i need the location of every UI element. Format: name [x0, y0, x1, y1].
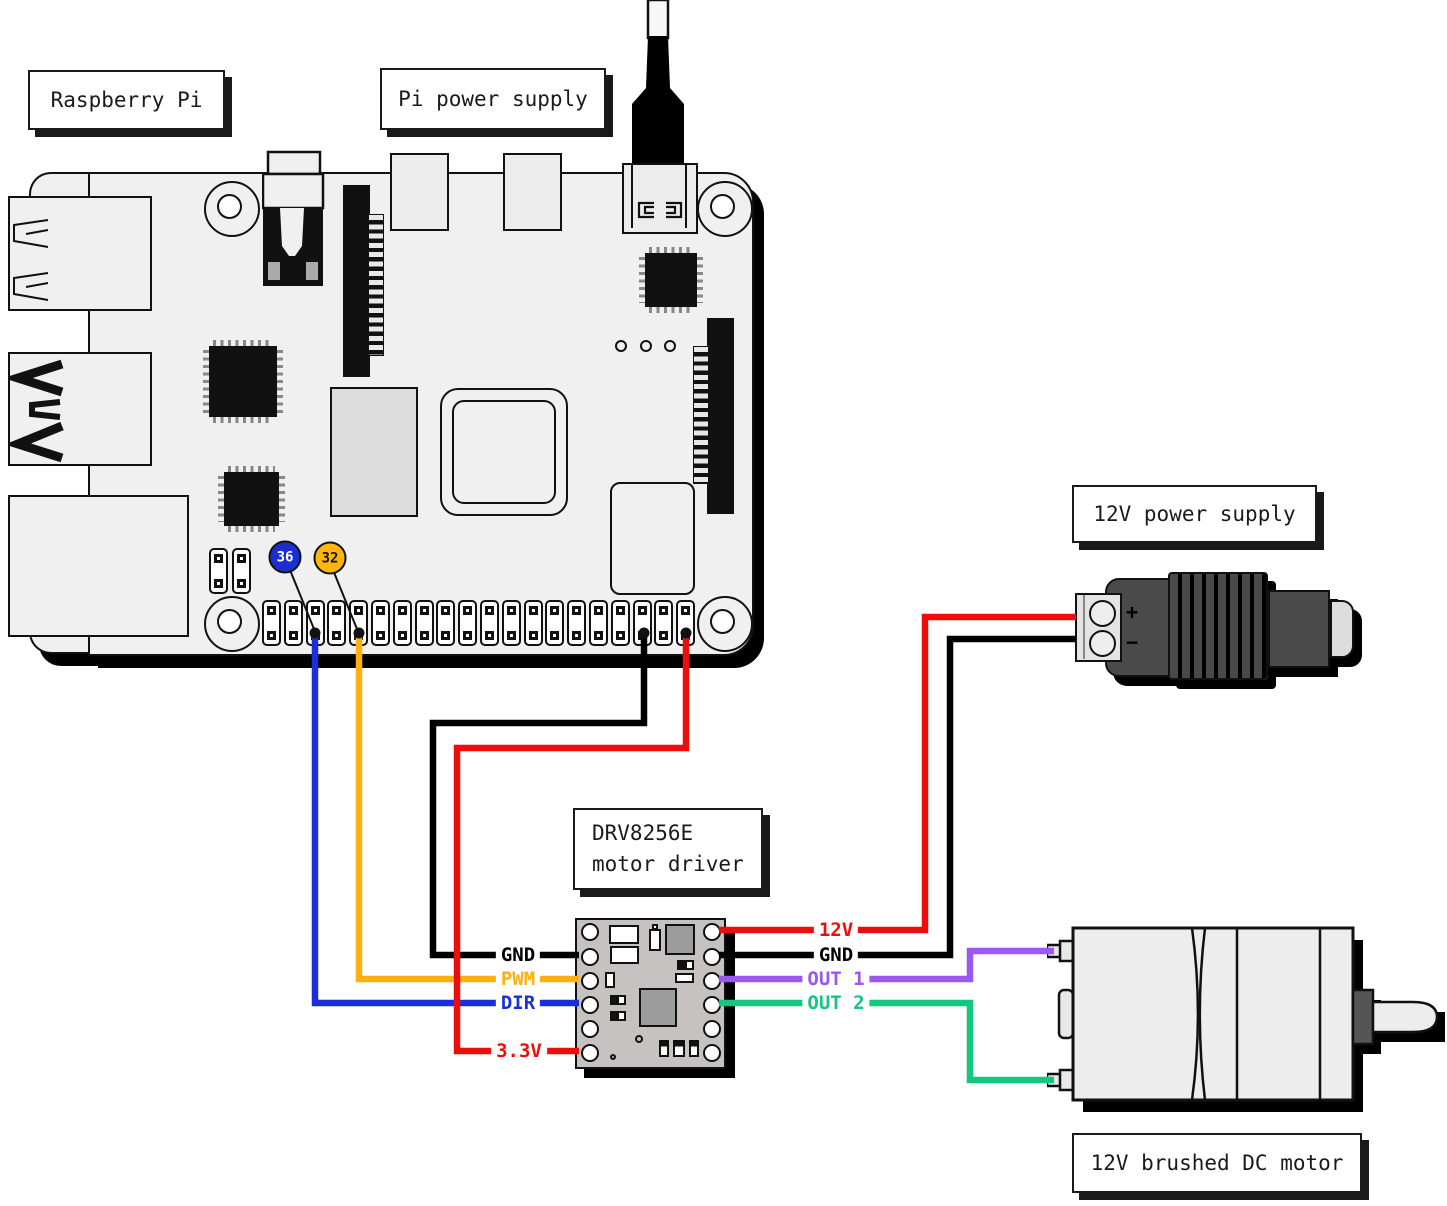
wire-12v: [719, 617, 1076, 930]
wire-label-out2: OUT 2: [802, 992, 869, 1014]
label-raspberry-pi-text: Raspberry Pi: [51, 88, 203, 112]
label-raspberry-pi: Raspberry Pi: [28, 70, 225, 130]
badge-32-pointer: [333, 570, 357, 629]
wire-label-dir: DIR: [496, 992, 540, 1014]
wire-out2: [719, 1003, 1054, 1080]
gpio-pin-badge-36: 36: [269, 541, 302, 574]
gpio-pin-dot: [310, 628, 321, 639]
wire-label-pwm: PWM: [496, 968, 540, 990]
wires-layer: [0, 0, 1447, 1206]
wire-label-12v: 12V: [814, 919, 858, 941]
gpio-pin-dot: [681, 628, 692, 639]
gpio-pin-dot: [639, 628, 650, 639]
wire-label-out1: OUT 1: [802, 968, 869, 990]
gpio-pin-badge-32: 32: [314, 542, 347, 575]
wire-gnd-pi: [433, 636, 644, 955]
label-12v-power-supply-text: 12V power supply: [1093, 502, 1295, 526]
label-motor-driver: DRV8256E motor driver: [573, 808, 763, 890]
wiring-diagram: + −: [0, 0, 1447, 1206]
label-motor-driver-line1: DRV8256E: [592, 818, 693, 849]
badge-36-pointer: [290, 570, 314, 629]
wire-label-gnd2: GND: [814, 944, 858, 966]
label-12v-power-supply: 12V power supply: [1072, 485, 1317, 543]
label-dc-motor-text: 12V brushed DC motor: [1091, 1151, 1344, 1175]
wire-pwm: [359, 636, 579, 979]
wire-gnd-supply: [719, 639, 1076, 955]
label-dc-motor: 12V brushed DC motor: [1072, 1133, 1362, 1193]
label-pi-power-supply-text: Pi power supply: [398, 87, 588, 111]
label-pi-power-supply: Pi power supply: [380, 68, 606, 130]
gpio-pin-dot: [354, 628, 365, 639]
label-motor-driver-line2: motor driver: [592, 849, 744, 880]
wire-label-3v3: 3.3V: [491, 1040, 547, 1062]
wire-label-gnd: GND: [496, 944, 540, 966]
